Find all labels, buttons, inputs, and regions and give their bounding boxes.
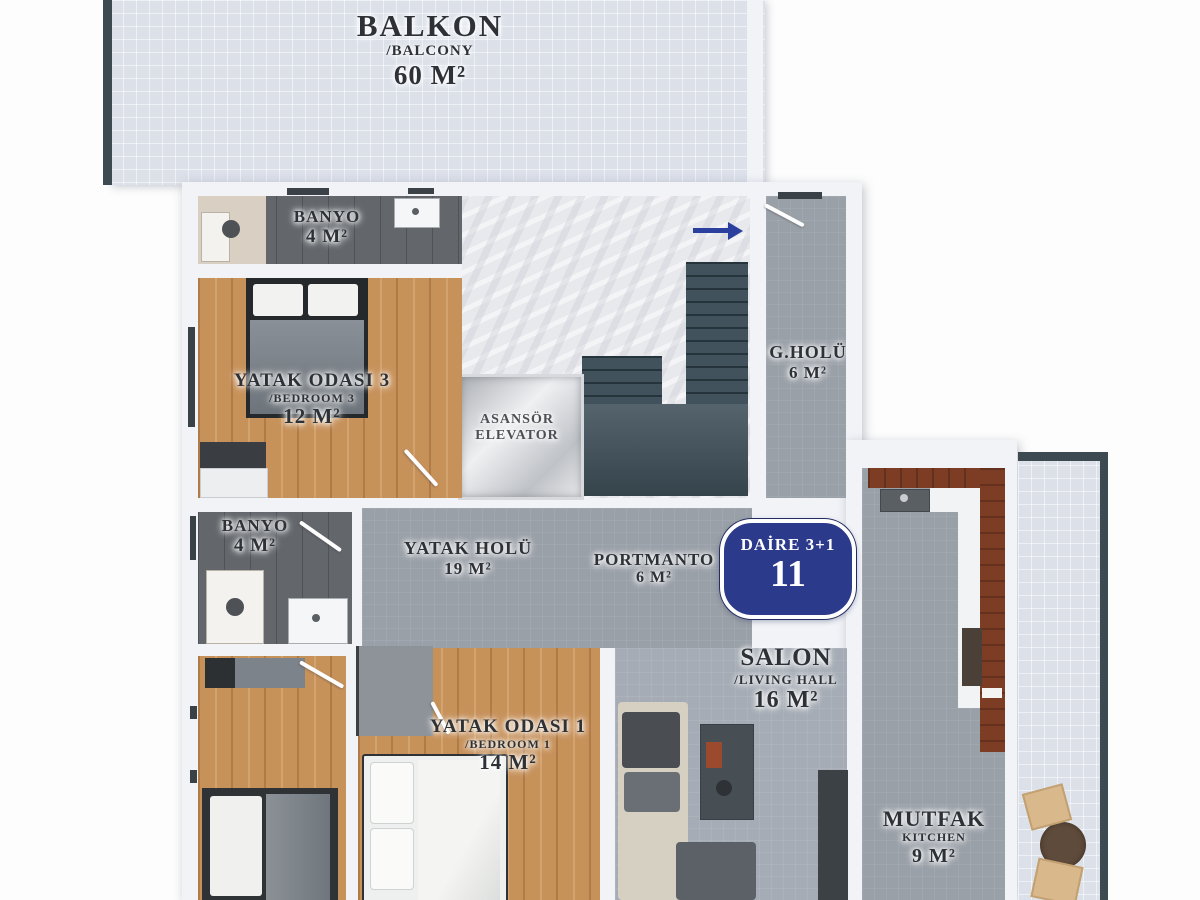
balcony-alt: /BALCONY: [357, 43, 503, 60]
sink-drain-icon: [412, 208, 419, 215]
bedroom-hall-label: YATAK HOLÜ 19 M²: [404, 538, 532, 578]
duvet-icon-bedroom1: [418, 760, 500, 900]
portmanto-label: PORTMANTO 6 M²: [594, 550, 714, 588]
window-icon-bathroom-mid: [190, 516, 196, 560]
kitchen-counter-white-icon: [930, 488, 980, 512]
faucet-icon: [900, 494, 908, 502]
direction-arrow-head-icon: [728, 222, 743, 240]
portmanto-area: 6 M²: [594, 569, 714, 587]
unit-badge-type: DAİRE 3+1: [724, 535, 852, 555]
unit-badge-number: 11: [724, 555, 852, 593]
stove-icon: [962, 628, 982, 686]
desk-icon-bedroom3: [200, 442, 266, 468]
bedroom1-label: YATAK ODASI 1 /BEDROOM 1 14 M²: [430, 716, 586, 775]
balcony-railing-right: [1100, 452, 1108, 900]
window-icon-bedroom3: [188, 327, 195, 427]
pillow-icon: [253, 284, 303, 316]
kitchen-label: MUTFAK KITCHEN 9 M²: [883, 806, 985, 868]
window-icon-bathroom-top: [287, 188, 329, 195]
elevator-name: ASANSÖR: [475, 412, 558, 428]
stairs-flight-icon: [686, 262, 748, 404]
pillow-icon: [308, 284, 358, 316]
bathroom-top-label: BANYO 4 M²: [294, 207, 360, 248]
sofa-pillow-icon: [624, 772, 680, 812]
dresser-icon-bedroom3: [200, 468, 268, 498]
sofa-pillow-icon: [622, 712, 680, 768]
bedroom1-area: 14 M²: [430, 751, 586, 775]
desk-icon-bedroom2: [205, 658, 305, 688]
sofa-chaise-icon: [676, 842, 756, 900]
kitchen-counter-right-icon: [980, 468, 1005, 752]
guest-hall-name: G.HOLÜ: [769, 342, 847, 363]
elevator-label: ASANSÖR ELEVATOR: [475, 412, 558, 444]
bedroom3-area: 12 M²: [234, 405, 390, 429]
bedroom-hall-name: YATAK HOLÜ: [404, 538, 532, 559]
toilet-lid-icon: [222, 220, 240, 238]
portmanto-name: PORTMANTO: [594, 550, 714, 569]
floor-plan: BALKON /BALCONY 60 M² BANYO 4 M² YATAK O…: [0, 0, 1200, 900]
living-hall-name: SALON: [734, 644, 837, 673]
tv-unit-icon: [818, 770, 848, 900]
kitchen-drawer-icon: [982, 688, 1002, 698]
bathroom-top-name: BANYO: [294, 207, 360, 226]
bedroom-hall-area: 19 M²: [404, 559, 532, 578]
unit-badge: DAİRE 3+1 11: [720, 519, 856, 619]
sink-drain-icon-mid: [312, 614, 320, 622]
stairs-upper-landing-icon: [582, 356, 662, 404]
bathroom-mid-label: BANYO 4 M²: [222, 516, 288, 557]
pillow-icon-bedroom1: [370, 828, 414, 890]
balcony-railing-top: [1018, 452, 1108, 461]
direction-arrow-icon: [693, 228, 729, 233]
kitchen-alt: KITCHEN: [883, 831, 985, 845]
armchair-icon: [706, 742, 722, 768]
living-hall-area: 16 M²: [734, 687, 837, 714]
decor-icon: [716, 780, 732, 796]
kitchen-area: 9 M²: [883, 845, 985, 868]
bedroom1-name: YATAK ODASI 1: [430, 716, 586, 738]
window-icon-guest-hall: [778, 192, 822, 199]
pillow-icon-bedroom2: [210, 796, 262, 896]
window-icon-bedroom2: [190, 706, 197, 719]
balcony-wall-right: [747, 0, 763, 185]
pillow-icon-bedroom1: [370, 762, 414, 824]
balcony-area: 60 M²: [357, 60, 503, 91]
guest-hall-area: 6 M²: [769, 363, 847, 382]
bathroom-top-area: 4 M²: [294, 226, 360, 248]
window-icon-bathroom-top2: [408, 188, 434, 194]
balcony-label: BALKON /BALCONY 60 M²: [357, 8, 503, 91]
wardrobe-icon-bedroom1: [356, 646, 433, 736]
balcony-name: BALKON: [357, 8, 503, 43]
guest-hall-label: G.HOLÜ 6 M²: [769, 342, 847, 382]
elevator-alt: ELEVATOR: [475, 428, 558, 444]
blanket-icon-bedroom2: [266, 794, 330, 900]
kitchen-name: MUTFAK: [883, 806, 985, 831]
living-hall-label: SALON /LIVING HALL 16 M²: [734, 644, 837, 715]
toilet-lid-icon-mid: [226, 598, 244, 616]
coffee-table-icon: [700, 724, 754, 820]
window-icon-bedroom2b: [190, 770, 197, 783]
balcony-railing-left: [103, 0, 112, 185]
bathroom-mid-area: 4 M²: [222, 535, 288, 557]
bedroom3-label: YATAK ODASI 3 /BEDROOM 3 12 M²: [234, 370, 390, 429]
bedroom3-name: YATAK ODASI 3: [234, 370, 390, 392]
stairs-landing-icon: [582, 404, 748, 496]
toilet-icon: [201, 212, 230, 262]
bathroom-mid-name: BANYO: [222, 516, 288, 535]
living-hall-alt: /LIVING HALL: [734, 673, 837, 688]
